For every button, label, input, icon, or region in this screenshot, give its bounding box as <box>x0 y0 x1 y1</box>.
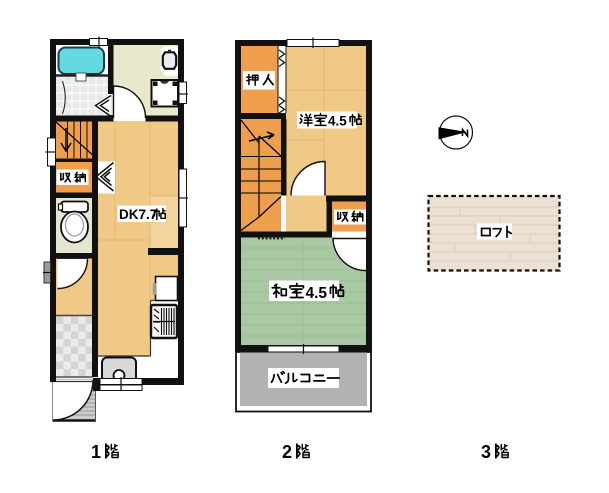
svg-text:DK7.7: DK7.7 <box>119 207 157 222</box>
svg-text:3: 3 <box>481 442 491 462</box>
svg-text:1: 1 <box>91 442 101 462</box>
svg-text:4.5: 4.5 <box>328 114 347 129</box>
svg-text:4.5: 4.5 <box>306 285 328 302</box>
svg-text:2: 2 <box>282 442 292 462</box>
